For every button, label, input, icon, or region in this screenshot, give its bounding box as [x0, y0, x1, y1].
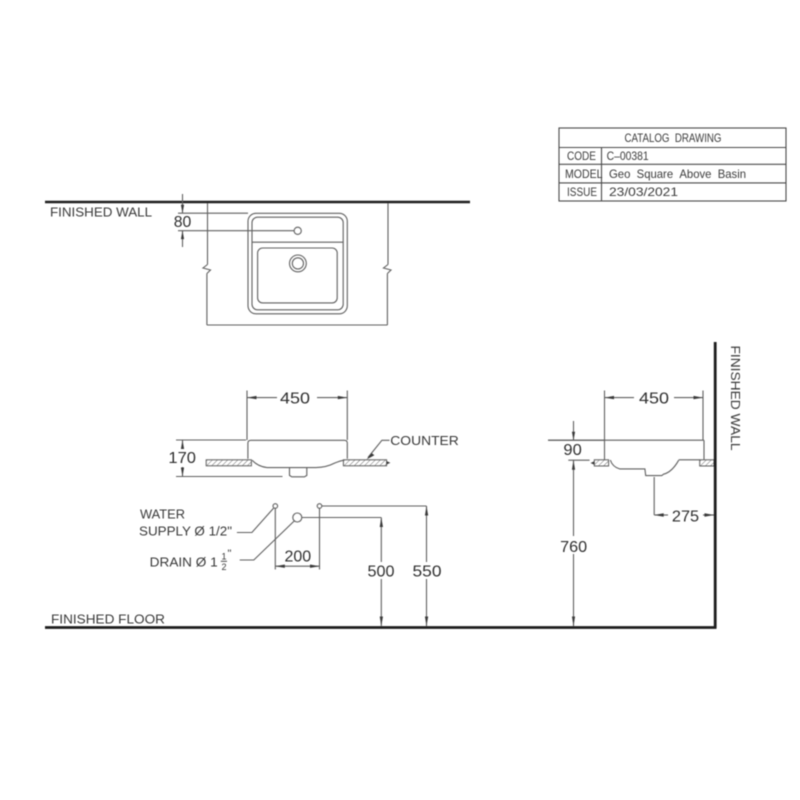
svg-text:CATALOG DRAWING: CATALOG DRAWING: [625, 132, 722, 145]
svg-text:760: 760: [560, 539, 587, 556]
svg-text:FINISHED WALL: FINISHED WALL: [50, 205, 152, 220]
svg-text:C–00381: C–00381: [607, 150, 649, 163]
svg-text:": ": [228, 548, 232, 560]
svg-text:23/03/2021: 23/03/2021: [609, 186, 678, 199]
svg-text:450: 450: [639, 391, 669, 408]
svg-text:ISSUE: ISSUE: [567, 186, 597, 199]
svg-text:MODEL: MODEL: [565, 168, 603, 181]
svg-text:550: 550: [413, 564, 442, 581]
svg-text:Geo Square Above Basin: Geo Square Above Basin: [609, 168, 746, 181]
svg-text:FINISHED WALL: FINISHED WALL: [728, 346, 743, 451]
svg-text:2: 2: [222, 562, 227, 572]
svg-text:80: 80: [174, 214, 192, 231]
svg-text:450: 450: [280, 391, 310, 408]
svg-text:SUPPLY Ø 1/2": SUPPLY Ø 1/2": [139, 523, 232, 538]
svg-text:90: 90: [563, 442, 582, 459]
svg-text:DRAIN Ø 1: DRAIN Ø 1: [150, 555, 218, 570]
svg-text:FINISHED FLOOR: FINISHED FLOOR: [51, 612, 165, 627]
svg-text:WATER: WATER: [140, 506, 185, 521]
svg-text:500: 500: [368, 564, 395, 581]
svg-text:COUNTER: COUNTER: [390, 433, 459, 448]
svg-text:200: 200: [284, 549, 311, 566]
svg-text:1: 1: [222, 552, 227, 562]
svg-text:170: 170: [168, 450, 196, 467]
svg-text:275: 275: [672, 508, 699, 525]
svg-text:CODE: CODE: [567, 150, 596, 163]
